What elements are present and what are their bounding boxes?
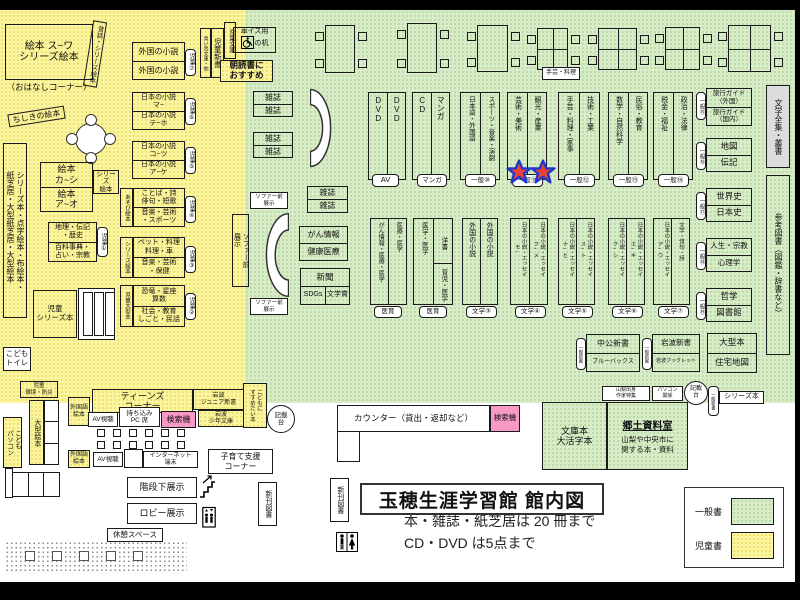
shelf-cell: 音楽・芸術 ・保健 xyxy=(134,257,184,277)
shelf-column: 日本の小説・エッセイ ア~ウ xyxy=(654,219,671,304)
chair xyxy=(440,59,449,68)
shelf-column: 外国の小説 xyxy=(463,219,480,304)
shelf-cell: ブルーバックス xyxy=(587,353,639,372)
shelf-ehon-ka-a: 絵本 カ~シ絵本 ア~オ xyxy=(40,162,93,212)
shelf-column: 医学・医学 xyxy=(414,219,433,304)
chair xyxy=(511,32,520,41)
shelf-column: 医療・医学 xyxy=(388,219,406,304)
legend-row-children: 児童書 xyxy=(685,528,783,562)
table-divider xyxy=(538,49,567,50)
shelf-series-ehon-strip: シリーズ絵本 xyxy=(120,237,133,278)
bench-seat xyxy=(43,473,59,496)
rest-seat xyxy=(106,551,116,561)
tag-bungaku-5: 文学⑤ xyxy=(562,306,593,318)
tag-bungaku-6: 文学⑥ xyxy=(612,306,643,318)
chair xyxy=(315,32,324,41)
tag-ippan-14: 一般⑭ xyxy=(658,174,689,187)
shelf-shinkan-tosho-2: 新刊図書 xyxy=(330,478,349,522)
shelf-cell: 住宅地図 xyxy=(708,353,756,373)
shelf-cell: がん情報 xyxy=(300,227,347,243)
kyodo-shiryo-room: 郷土資料室山梨や中央市に 関する本・資料 xyxy=(607,402,688,470)
shelf-cell: 人生・宗教 xyxy=(707,239,751,255)
shelf-rack-slats xyxy=(78,288,115,340)
shelf-subcell: 洋書 xyxy=(434,222,453,263)
search-terminal: 検索機 xyxy=(490,405,520,432)
shelf-sugaku-minzoku: 数学・自然科学民俗・教育 xyxy=(608,92,648,180)
shelf-cell: 雑誌 xyxy=(254,104,292,117)
shelf-sdgs: SDGs xyxy=(300,286,326,305)
shelf-jinsei-shinri: 人生・宗教心理学 xyxy=(706,238,752,272)
chair-circle xyxy=(66,133,78,145)
shelf-cell: 雑誌 xyxy=(254,133,292,145)
shelf-iwanami-junior: 岩波 ジュニア新書 xyxy=(193,389,244,410)
shelf-cell: 日本史 xyxy=(707,205,751,222)
shelf-sekaishi-nihonshi: 世界史日本史 xyxy=(706,188,752,222)
tag-jido-3: 児童③ xyxy=(185,246,196,273)
reading-round-table xyxy=(70,118,110,158)
chair xyxy=(113,441,121,449)
shelf-cell: 雑誌 xyxy=(308,187,347,199)
reading-table xyxy=(407,23,437,73)
shelf-jido-series-bon: 児童 シリーズ本 xyxy=(33,290,77,338)
shelf-cell xyxy=(45,401,58,421)
av-seat-2: AV視聴 xyxy=(93,452,123,467)
shelf-bunkobon-daikatsuji: 文庫本 大活字本 xyxy=(542,402,607,470)
reading-table xyxy=(665,27,700,70)
shelf-cell: 外国の小説 xyxy=(133,43,184,61)
shelf-jido-ogata-strip: 児童大型本 xyxy=(120,285,133,327)
shelf-cell: 岩波新書 xyxy=(653,335,699,353)
chair xyxy=(440,30,449,39)
rest-space-label: 休憩スペース xyxy=(107,528,163,542)
tag-ippan-shinsho: 一般新書 xyxy=(576,338,586,370)
shelf-cell xyxy=(45,421,58,442)
chair xyxy=(358,32,367,41)
shelf-column: 政治・法律 xyxy=(673,93,693,179)
shelf-series-tenji-ehon: シリーズ本・点字絵本・布絵本・ 紙芝居・大型紙芝居・大型絵本 xyxy=(3,143,27,318)
search-terminal-2: 検索機 xyxy=(161,411,196,428)
shelf-aoitori-bunko: 青い鳥文庫・他 xyxy=(200,28,211,78)
chair xyxy=(774,32,783,41)
chair xyxy=(718,58,727,67)
chair xyxy=(655,56,664,65)
reading-table xyxy=(325,25,355,73)
star-marker xyxy=(506,159,532,185)
shelf-igaku-yosho: 医学・医学洋書育児・医学 xyxy=(413,218,453,305)
shelf-ryoko-guide: 旅行ガイド （外国）旅行ガイド （国内） xyxy=(706,88,752,126)
shelf-column: がん情報・医療・医学 xyxy=(371,219,388,304)
chair xyxy=(129,441,137,449)
label-sofa-display-top: ソファー前 展示 xyxy=(250,192,288,209)
shelf-column: 外国の小説 xyxy=(480,219,498,304)
chair xyxy=(97,441,105,449)
chair xyxy=(774,58,783,67)
tag-jido-1: 児童① xyxy=(97,227,108,257)
tag-bungaku-4: 文学④ xyxy=(515,306,546,318)
shelf-column: DVD xyxy=(369,93,387,179)
chair xyxy=(129,429,137,437)
shelf-column: 日本の小説・エッセイ エ~キ xyxy=(626,219,644,304)
shelf-shinkan-tosho-1: 新刊図書 xyxy=(258,482,277,526)
library-floor-map-screenshot: { "title": "玉穂生涯学習館 館内図", "notes": ["本・雑… xyxy=(0,0,800,600)
shelf-column: 手芸・料理・家事 xyxy=(559,93,579,179)
rest-seat xyxy=(52,551,62,561)
shelf-ogata-ehon-rack xyxy=(44,400,59,465)
blank-booth xyxy=(124,449,143,468)
shelf-column: 日本の小説・エッセイ モ~ xyxy=(511,219,529,304)
shelf-cell: 図書館 xyxy=(707,305,751,322)
shelf-cell: 伝記 xyxy=(707,155,751,172)
note-av-limit: CD・DVD は5点まで xyxy=(404,533,535,553)
shelf-ogata-jutaku: 大型本住宅地図 xyxy=(707,333,757,373)
shelf-tetsugaku-toshokan: 哲学図書館 xyxy=(706,288,752,322)
shelf-gaikoku-shosetsu-jido: 外国の小説外国の小説 xyxy=(132,42,185,80)
chair xyxy=(703,34,712,43)
chair xyxy=(588,56,597,65)
tag-jido-6: 児童⑥ xyxy=(185,98,196,125)
shelf-column: 日本語・外国語 xyxy=(461,93,480,179)
shelf-chiri-denki-rekishi: 地理・伝記 ・歴史百科事典・ 占い・宗教 xyxy=(48,222,97,262)
tag-ippan-shinsho: 一般新書 xyxy=(708,386,719,416)
sofa-crescent xyxy=(310,88,352,168)
star-marker xyxy=(530,159,556,185)
kids-pc: こども パソコン xyxy=(3,417,22,468)
shelf-cd-manga: CDマンガ xyxy=(412,92,450,180)
lobby-display: ロビー展示 xyxy=(127,503,197,524)
label-asadokusho-osusume: 朝読書に おすすめ xyxy=(220,60,273,82)
shelf-iwanami-shinsho: 岩波新書岩波ブックレット xyxy=(652,334,700,372)
shelf-column: 日本の小説・エッセイ ス~ト xyxy=(576,219,594,304)
shelf-series-ehon-small: シリーズ 絵本 xyxy=(93,170,119,194)
internet-terminal: インターネット 端末 xyxy=(143,451,198,468)
note-borrow-limit: 本・雑誌・紙芝居は 20 冊まで xyxy=(404,511,595,531)
tag-ippan-shinsho: 一般新書 xyxy=(642,338,652,370)
chair xyxy=(358,59,367,68)
table-divider xyxy=(729,49,770,50)
byo-pc-seat: 持ち込み PC 席 xyxy=(119,407,160,427)
shelf-cell: 絵本 ア~オ xyxy=(41,187,92,212)
counter-leg xyxy=(337,431,360,462)
tag-ippan-18: 一般⑱ xyxy=(696,242,706,270)
chair xyxy=(571,35,580,44)
shelf-gaikoku-shosetsu: 外国の小説外国の小説 xyxy=(462,218,498,305)
sofa-crescent xyxy=(243,212,289,298)
shelf-cell: 百科事典・ 占い・宗教 xyxy=(49,242,96,262)
chair xyxy=(640,35,649,44)
shelf-column: スポーツ・音楽・演劇 xyxy=(480,93,500,179)
tag-iiku-1: 医育 xyxy=(374,306,402,318)
bench-seat xyxy=(28,473,44,496)
shelf-cell: 世界史 xyxy=(707,189,751,205)
shelf-nihon-shosetsu-ko: 日本の小説 コ~ツ日本の小説 ア~ケ xyxy=(132,141,185,179)
chair-circle xyxy=(104,133,116,145)
chair xyxy=(655,34,664,43)
shelf-cell: 日本の小説 コ~ツ xyxy=(133,142,184,160)
shelf-chizu-denki: 地図伝記 xyxy=(706,138,752,172)
chair xyxy=(97,429,105,437)
reading-table xyxy=(598,28,637,70)
shelf-slat xyxy=(94,292,104,336)
legend-row-general: 一般書 xyxy=(685,494,783,528)
shelf-picturebook-su-wa: 絵本 ス~ワ シリーズ絵本 xyxy=(5,24,93,80)
shelf-cell: 音楽・芸術 ・スポーツ xyxy=(134,207,184,226)
shelf-zasshi-1: 雑誌雑誌 xyxy=(253,91,293,117)
wheelchair-desk: 車イス用の机 xyxy=(233,27,276,53)
reading-table xyxy=(477,25,508,72)
page-title-text: 玉穂生涯学習館 館内図 xyxy=(379,486,585,513)
shelf-cell: 日本の小説 テ~ホ xyxy=(133,111,184,130)
chair xyxy=(145,441,153,449)
tag-jido-5: 児童⑤ xyxy=(185,147,196,174)
shelf-sanko-tosho: 参考図書（図鑑・辞書など） xyxy=(766,175,790,355)
chair xyxy=(703,56,712,65)
legend-children-label: 児童書 xyxy=(695,539,731,552)
shelf-gaikokugo-ehon-2: 外国語 絵本 xyxy=(68,450,90,468)
av-seat-1: AV視聴 xyxy=(88,412,118,427)
shelf-column: DVD xyxy=(387,93,406,179)
chair xyxy=(113,429,121,437)
chair xyxy=(397,30,406,39)
shelf-ogata-ehon: 大型絵本 xyxy=(29,400,44,465)
counter: カウンター（貸出・返却など） xyxy=(337,405,490,432)
tag-jido-7: 児童⑦ xyxy=(185,49,196,76)
toilet-icon xyxy=(336,532,358,552)
stairs-icon xyxy=(199,474,216,498)
shelf-cell: 心理学 xyxy=(707,255,751,272)
shelf-column: 文学・俳句・詩 xyxy=(671,219,689,304)
tag-bungaku-3: 文学③ xyxy=(466,306,497,318)
shelf-column: 民俗・教育 xyxy=(628,93,648,179)
rest-seat xyxy=(133,551,143,561)
shelf-kodomo-susume: こどもに すすめたい本 xyxy=(243,383,267,428)
chair xyxy=(527,35,536,44)
shelf-slat xyxy=(105,292,115,336)
round-table xyxy=(75,123,107,155)
shelf-slat xyxy=(83,292,93,336)
chair xyxy=(161,441,169,449)
shelf-column: 日本の小説・エッセイ ナ~ヒ xyxy=(559,219,576,304)
shelf-column: CD xyxy=(413,93,431,179)
shelf-series-bon: シリーズ本 xyxy=(719,391,764,404)
kosodate-shien-corner: 子育て支援 コーナー xyxy=(208,449,273,474)
shelf-cell: 健康医療 xyxy=(300,243,347,260)
shelf-shimbun: 新聞 xyxy=(300,268,350,287)
legend-general-swatch xyxy=(731,498,774,525)
label-shugei-ryori: 手芸・料理 xyxy=(542,67,580,80)
chair xyxy=(511,58,520,67)
shelf-kyoryu-seiza: 恐竜・星座 算数社会・教育 しごと・民話 xyxy=(133,285,185,327)
bench-seat xyxy=(13,473,28,496)
shelf-cell: 旅行ガイド （国内） xyxy=(707,107,751,126)
tag-iiku-2: 医育 xyxy=(419,306,447,318)
label-yamanashi-sakka: 山梨出身 作家特集 xyxy=(602,386,650,401)
bench-row xyxy=(12,472,60,497)
chair xyxy=(161,429,169,437)
shelf-cell: 雑誌 xyxy=(254,145,292,158)
tag-ippan-16: 一般⑯ xyxy=(696,142,706,170)
shelf-cell: 雑誌 xyxy=(254,92,292,104)
tag-bungaku-7: 文学⑦ xyxy=(658,306,689,318)
shelf-subcell: 育児・医学 xyxy=(434,263,453,305)
label-sofa-display-side: ソファー前 展示 xyxy=(232,214,249,287)
shelf-cell: 地図 xyxy=(707,139,751,155)
tag-ippan-13: 一般⑬ xyxy=(613,174,644,187)
rest-space-area xyxy=(5,541,187,572)
chair xyxy=(527,56,536,65)
table-divider xyxy=(666,49,699,50)
shelf-column: 数学・自然科学 xyxy=(609,93,628,179)
shelf-cell: 地理・伝記 ・歴史 xyxy=(49,223,96,242)
shelf-kotoba-shi: ことば・詩 俳句・短歌音楽・芸術 ・スポーツ xyxy=(133,188,185,227)
shelf-gengo-sports: 日本語・外国語スポーツ・音楽・演劇 xyxy=(460,92,500,180)
chair xyxy=(640,56,649,65)
tag-ippan-19: 一般⑲ xyxy=(696,292,706,320)
shelf-cell: 絵本 カ~シ xyxy=(41,163,92,187)
shelf-cell: 社会・教育 しごと・民話 xyxy=(134,306,184,327)
shelf-gan-joho-kenko: がん情報健康医療 xyxy=(299,226,348,261)
wheelchair-row: の机 xyxy=(234,36,275,49)
shelf-asobi-ehon-strip: あそび絵本 xyxy=(120,188,133,227)
chair xyxy=(177,429,185,437)
tag-ippan-17: 一般⑰ xyxy=(696,192,706,220)
shelf-chuko-shinsho: 中公新書ブルーバックス xyxy=(586,334,640,372)
legend-general-label: 一般書 xyxy=(695,505,731,518)
tag-ippan-10: 一般⑩ xyxy=(465,174,496,187)
shelf-cell: 哲学 xyxy=(707,289,751,305)
shelf-cell: 日本の小説 マ~ xyxy=(133,93,184,111)
shelf-nihon-essay-mo: 日本の小説・エッセイ モ~日本の小説・エッセイ フ~メ xyxy=(510,218,548,305)
shelf-column: 税金・福祉 xyxy=(654,93,673,179)
shelf-cell: ペット・料理 料理・車 xyxy=(134,238,184,257)
tag-manga: マンガ xyxy=(417,174,447,187)
reading-table xyxy=(728,25,771,72)
shelf-zeikin-seiji: 税金・福祉政治・法律 xyxy=(653,92,693,180)
shelf-cell: 岩波ブックレット xyxy=(653,353,699,372)
shelf-zasshi-2: 雑誌雑誌 xyxy=(253,132,293,158)
shelf-cell: 恐竜・星座 算数 xyxy=(134,286,184,306)
shelf-bungaku-zenshu: 文学全集・叢書 xyxy=(766,85,790,168)
shelf-cell: 旅行ガイド （外国） xyxy=(707,89,751,107)
chair xyxy=(397,59,406,68)
shelf-nihon-essay-a: 日本の小説・エッセイ ア~ウ文学・俳句・詩 xyxy=(653,218,690,305)
shelf-cell xyxy=(45,443,58,464)
shelf-nihon-shosetsu-ma: 日本の小説 マ~日本の小説 テ~ホ xyxy=(132,92,185,130)
tag-jido-4: 児童④ xyxy=(185,196,196,223)
chair xyxy=(571,56,580,65)
shelf-gaikokugo-ehon-1: 外国語 絵本 xyxy=(68,397,90,426)
shelf-cell: 外国の小説 xyxy=(133,61,184,80)
rest-seat xyxy=(25,551,35,561)
wheelchair-icon xyxy=(241,36,254,49)
kids-toilet: こども トイレ xyxy=(3,347,31,371)
shelf-column: マンガ xyxy=(431,93,450,179)
shelf-cell: ことば・詩 俳句・短歌 xyxy=(134,189,184,207)
rest-seat xyxy=(79,551,89,561)
chair xyxy=(467,58,476,67)
shelf-column: 日本の小説・エッセイ ク~シ xyxy=(609,219,626,304)
chair xyxy=(177,441,185,449)
shelf-zasshi-3: 雑誌雑誌 xyxy=(307,186,348,213)
kaidan-shita-display: 階段下展示 xyxy=(127,477,197,498)
shelf-jido-kankyo-bosai: 児童 環境・防災 xyxy=(20,381,58,398)
tag-ippan-12: 一般⑫ xyxy=(564,174,595,187)
kisaidai-desk-2: 記載 台 xyxy=(267,405,295,433)
chair xyxy=(588,35,597,44)
label-sofa-display-bottom: ソファー前 展示 xyxy=(250,298,288,315)
tag-ippan-15: 一般⑮ xyxy=(696,92,706,120)
tag-jido-2: 児童② xyxy=(185,293,196,320)
shelf-column: 日本の小説・エッセイ フ~メ xyxy=(529,219,548,304)
shelf-nihon-essay-ku: 日本の小説・エッセイ ク~シ日本の小説・エッセイ エ~キ xyxy=(608,218,645,305)
shelf-bungakusho: 文学賞 xyxy=(325,286,350,305)
shelf-cell: 雑誌 xyxy=(308,199,347,212)
elevator-icon xyxy=(202,505,216,528)
shelf-iwanami-shonen: 岩波 少年文庫 xyxy=(198,410,244,427)
shelf-cell: 大型本 xyxy=(708,334,756,353)
shelf-nihon-essay-na: 日本の小説・エッセイ ナ~ヒ日本の小説・エッセイ ス~ト xyxy=(558,218,595,305)
chair xyxy=(718,32,727,41)
legend: 一般書 児童書 xyxy=(684,487,784,568)
shelf-cell: 日本の小説 ア~ケ xyxy=(133,160,184,179)
shelf-gan-iryo-igaku: がん情報・医療・医学医療・医学 xyxy=(370,218,407,305)
shelf-column: 技術・工業 xyxy=(579,93,600,179)
tag-av: AV xyxy=(372,174,399,187)
label-pc-kankei: パソコン 関係 xyxy=(652,386,683,401)
shelf-shugei-gijutsu: 手芸・料理・家事技術・工業 xyxy=(558,92,600,180)
shelf-column: 洋書育児・医学 xyxy=(433,219,453,304)
shelf-dvd: DVDDVD xyxy=(368,92,406,180)
table-divider xyxy=(599,49,636,50)
legend-children-swatch xyxy=(731,532,774,559)
chair xyxy=(467,32,476,41)
shelf-cell: 中公新書 xyxy=(587,335,639,353)
chair xyxy=(145,429,153,437)
chair-circle xyxy=(85,114,97,126)
shelf-pet-ryori: ペット・料理 料理・車音楽・芸術 ・保健 xyxy=(133,237,185,278)
reading-table xyxy=(537,28,568,70)
chair xyxy=(315,59,324,68)
